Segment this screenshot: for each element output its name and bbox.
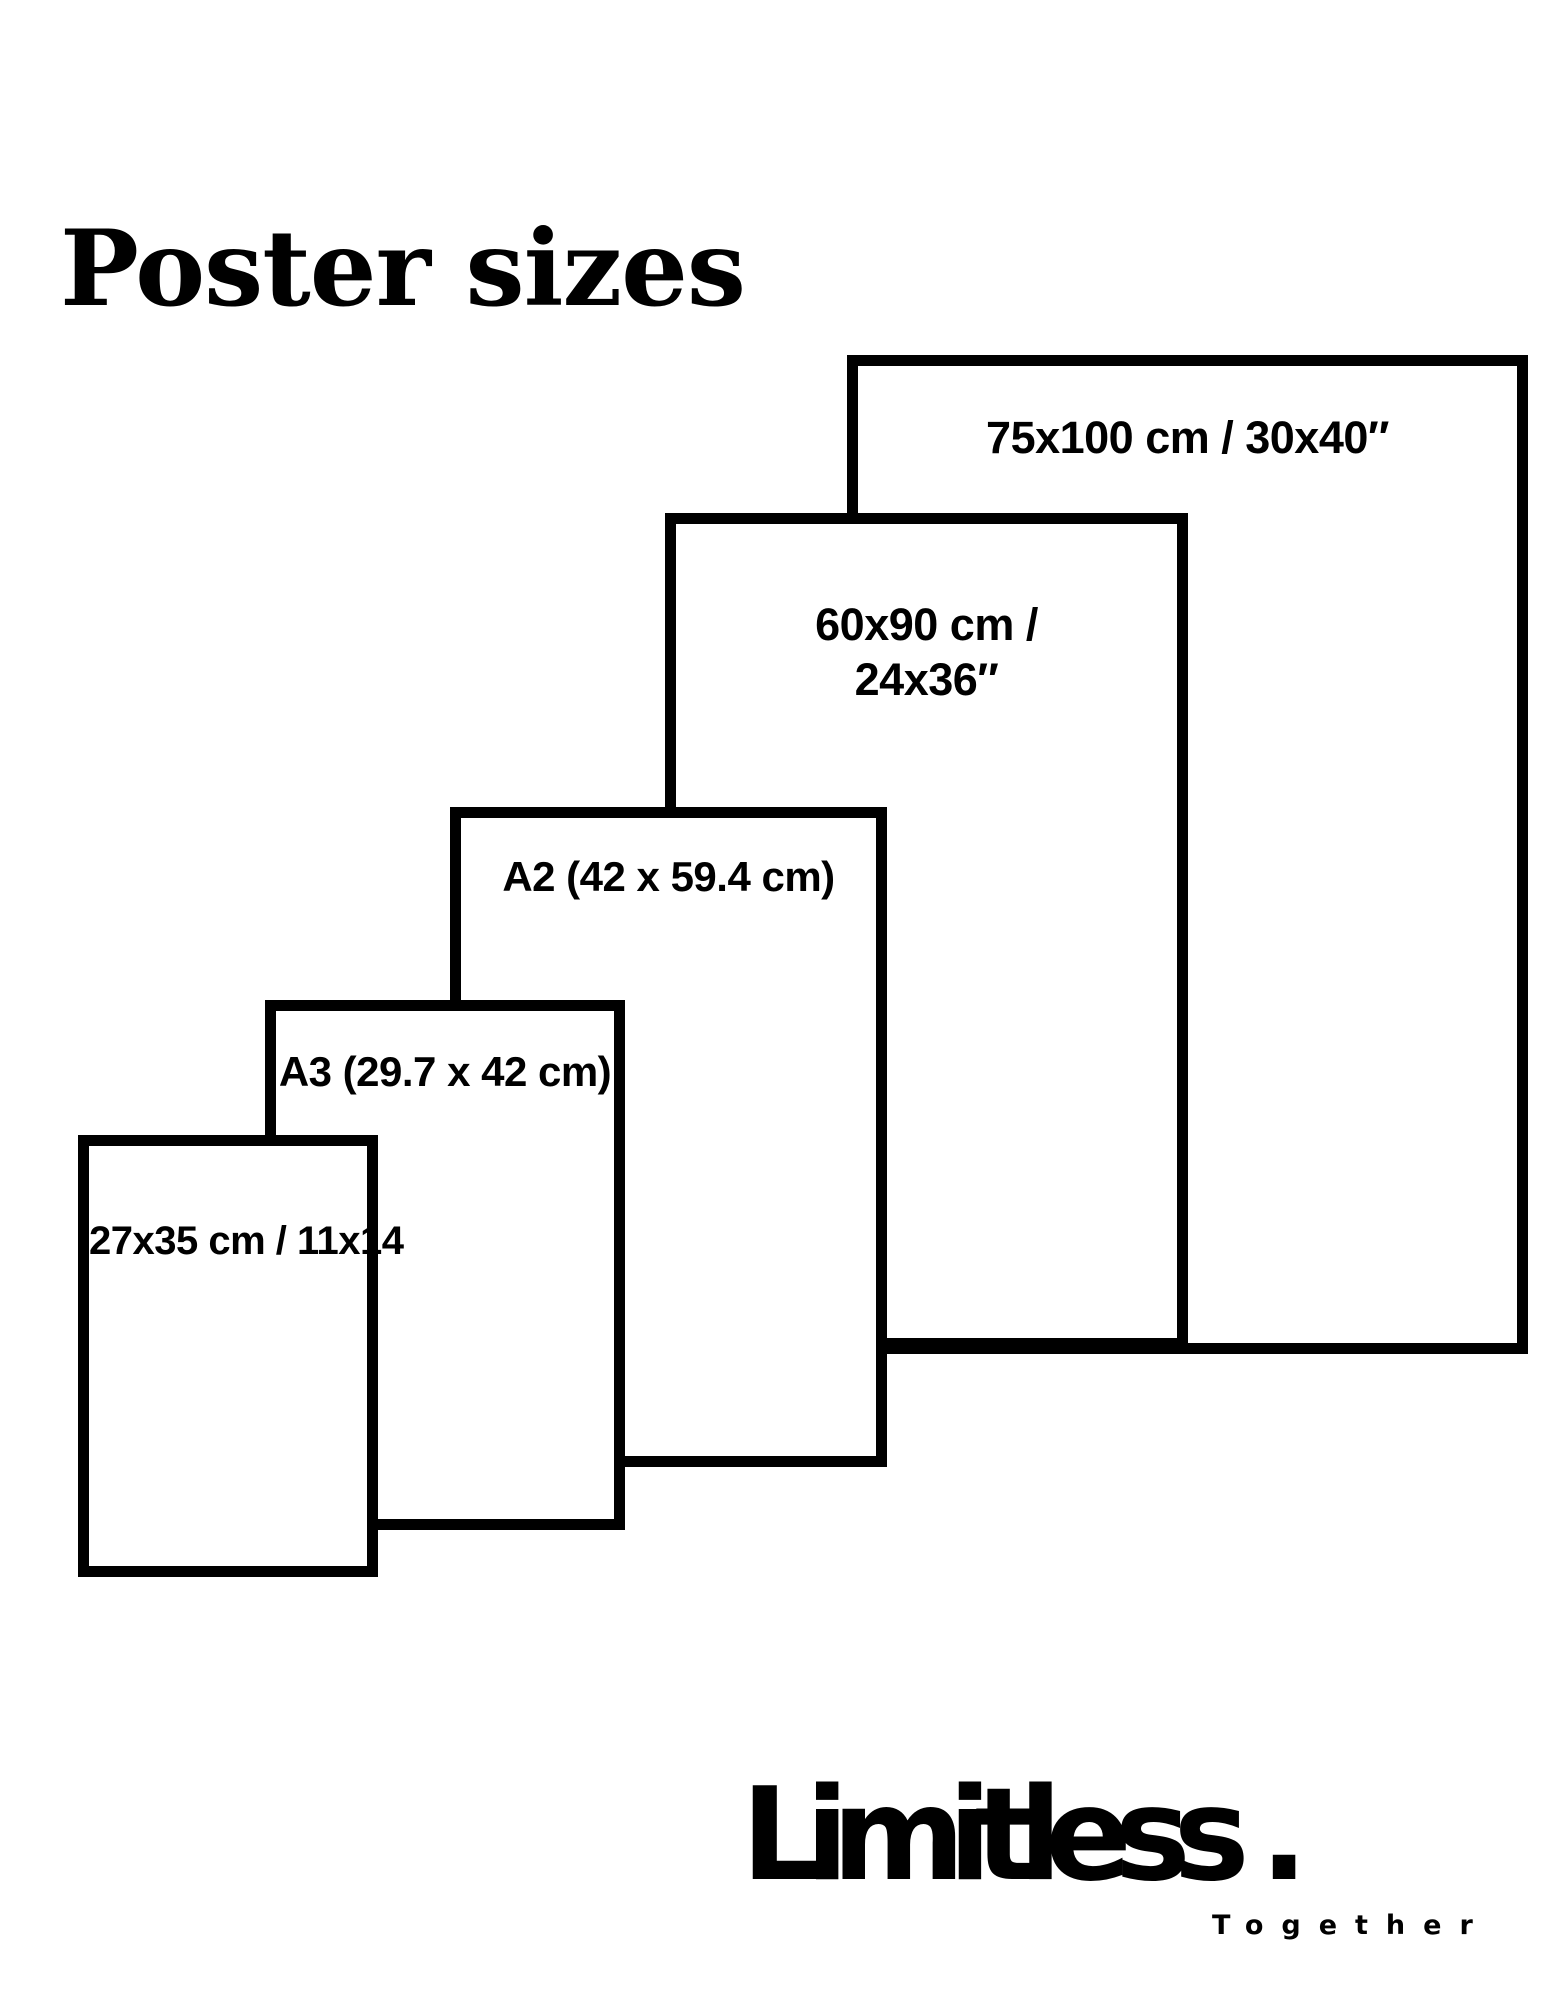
size-label-27x35: 27x35 cm / 11x14 bbox=[89, 1216, 367, 1266]
brand-logo-tagline: Together bbox=[1212, 1911, 1491, 1941]
brand-logo-wordmark: Limitless . bbox=[741, 1772, 1291, 1900]
size-label-60x90: 60x90 cm / 24x36″ bbox=[772, 597, 1082, 707]
size-rect-27x35: 27x35 cm / 11x14 bbox=[78, 1135, 378, 1577]
size-label-a3: A3 (29.7 x 42 cm) bbox=[276, 1046, 614, 1098]
size-label-75x100: 75x100 cm / 30x40″ bbox=[858, 410, 1517, 465]
size-label-a2: A2 (42 x 59.4 cm) bbox=[461, 851, 876, 903]
page-title: Poster sizes bbox=[60, 212, 745, 324]
poster-sizes-diagram: Poster sizes 75x100 cm / 30x40″ 60x90 cm… bbox=[0, 0, 1545, 2000]
